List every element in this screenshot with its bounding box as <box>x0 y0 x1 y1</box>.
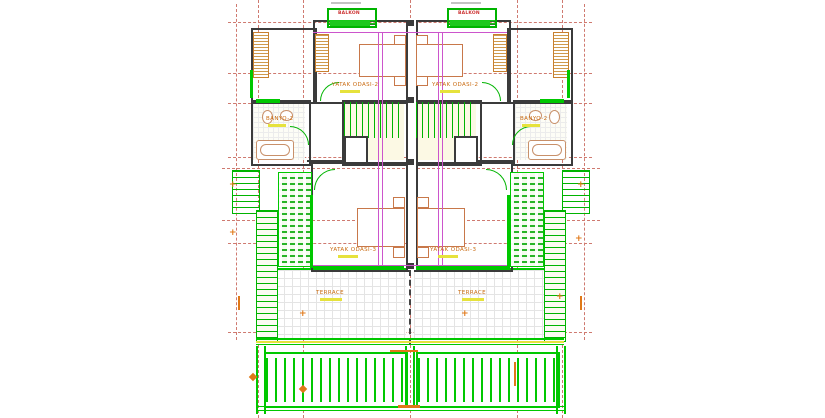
stair-landing <box>344 136 368 164</box>
area-value-highlight <box>340 90 360 93</box>
balcony-door-right <box>450 21 490 26</box>
level-marker: + <box>229 230 237 236</box>
room-label-bathroom-left: BANYO-2 <box>266 116 293 122</box>
hall-wall-left <box>307 160 342 162</box>
section-line <box>442 32 443 265</box>
bed <box>357 208 405 247</box>
hall-wall-right <box>478 160 513 162</box>
terrace-door-left <box>313 266 404 270</box>
area-value-highlight <box>522 124 540 127</box>
dimension-annotation <box>580 296 582 310</box>
section-line <box>382 32 383 265</box>
level-marker: + <box>299 311 307 317</box>
glazing-bedroom3-left <box>310 195 313 268</box>
wardrobe <box>315 34 329 72</box>
area-value-highlight <box>438 255 458 258</box>
section-line <box>378 32 379 265</box>
room-label-bedroom2-right: YATAK ODASI-2 <box>432 82 478 88</box>
wardrobe <box>253 32 269 78</box>
balcony-door-left <box>330 21 370 26</box>
stair-landing <box>454 136 478 164</box>
railing-end-post-right <box>556 346 566 414</box>
party-wall-block <box>406 263 414 269</box>
railing-center-post <box>413 346 415 408</box>
dimension-annotation <box>398 405 420 408</box>
stair-treads <box>344 102 404 138</box>
dimension-text <box>331 2 361 4</box>
floor-plan-canvas: BALKON BALKON <box>0 0 825 418</box>
section-line <box>313 265 507 266</box>
terrace-edge-line <box>256 338 564 340</box>
nightstand <box>394 35 406 45</box>
nightstand <box>394 76 406 86</box>
dimension-annotation <box>514 362 516 386</box>
railing-end-post-left <box>256 346 266 414</box>
railing-panel-left <box>264 352 408 408</box>
room-label-bedroom3-right: YATAK ODASI-3 <box>430 247 476 253</box>
section-line <box>313 32 507 33</box>
window-bathroom-left <box>256 99 280 103</box>
railing-panel-right <box>416 352 560 408</box>
wardrobe <box>493 34 507 72</box>
walkway-left <box>256 210 278 342</box>
area-value-highlight <box>320 298 342 301</box>
level-marker: + <box>229 182 237 188</box>
window-dressing-right <box>567 70 570 98</box>
room-label-terrace-right: TERRACE <box>458 290 486 296</box>
terrace-edge-highlight <box>256 341 564 343</box>
level-marker: + <box>461 311 469 317</box>
balcony-label: BALKON <box>458 11 480 16</box>
railing-center-post <box>405 346 407 408</box>
terrace-left <box>276 268 406 340</box>
nightstand <box>416 76 428 86</box>
stair-treads <box>416 102 476 138</box>
room-label-bedroom3-left: YATAK ODASI-3 <box>330 247 376 253</box>
room-label-bathroom-right: BANYO-2 <box>520 116 547 122</box>
area-value-highlight <box>462 298 484 301</box>
bathtub <box>528 140 566 160</box>
area-value-highlight <box>338 255 358 258</box>
nightstand <box>393 197 405 208</box>
glazing-bedroom3-right <box>507 195 510 268</box>
level-marker: + <box>577 182 585 188</box>
bed <box>417 208 465 247</box>
level-marker: + <box>556 294 564 300</box>
terrace-edge-line <box>256 344 564 345</box>
terrace-right <box>414 268 544 340</box>
nightstand <box>417 247 429 258</box>
area-value-highlight <box>440 90 460 93</box>
area-value-highlight <box>268 124 286 127</box>
planter-left <box>278 172 312 267</box>
toilet <box>549 110 560 124</box>
dimension-annotation <box>238 296 240 310</box>
exterior-stair-left <box>232 170 260 214</box>
nightstand <box>416 35 428 45</box>
room-label-terrace-left: TERRACE <box>316 290 344 296</box>
party-wall-block <box>406 159 414 165</box>
bathtub <box>256 140 294 160</box>
bed <box>416 44 463 77</box>
planter-right <box>510 172 544 267</box>
party-wall-block <box>406 97 414 103</box>
party-wall-terrace-dashed <box>409 270 411 344</box>
party-wall-block <box>406 20 414 26</box>
walkway-right <box>544 210 566 342</box>
nightstand <box>393 247 405 258</box>
railing-balusters <box>266 358 406 402</box>
railing-balusters <box>418 358 558 402</box>
section-line <box>438 32 439 265</box>
window-bathroom-right <box>540 99 564 103</box>
room-label-bedroom2-left: YATAK ODASI-2 <box>332 82 378 88</box>
balcony-label: BALKON <box>338 11 360 16</box>
dimension-annotation <box>390 350 418 352</box>
exterior-stair-right <box>562 170 590 214</box>
level-marker: + <box>575 236 583 242</box>
terrace-door-right <box>416 266 507 270</box>
dimension-text <box>451 2 481 4</box>
railing-base-line <box>256 410 564 411</box>
window-dressing-left <box>250 70 253 98</box>
nightstand <box>417 197 429 208</box>
